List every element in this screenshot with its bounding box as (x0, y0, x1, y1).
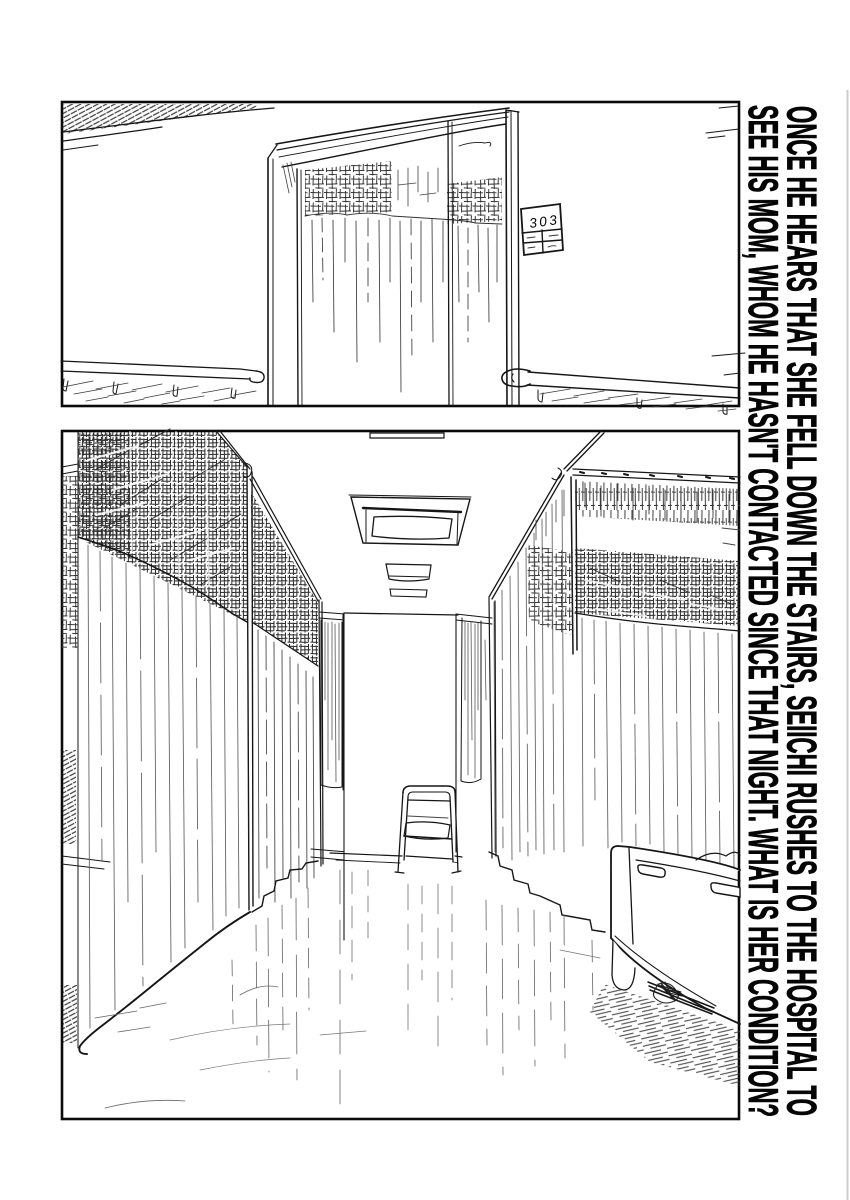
svg-text:SEE HIS MOM, WHOM HE HASN'T CO: SEE HIS MOM, WHOM HE HASN'T CONTACTED SI… (740, 105, 787, 1117)
